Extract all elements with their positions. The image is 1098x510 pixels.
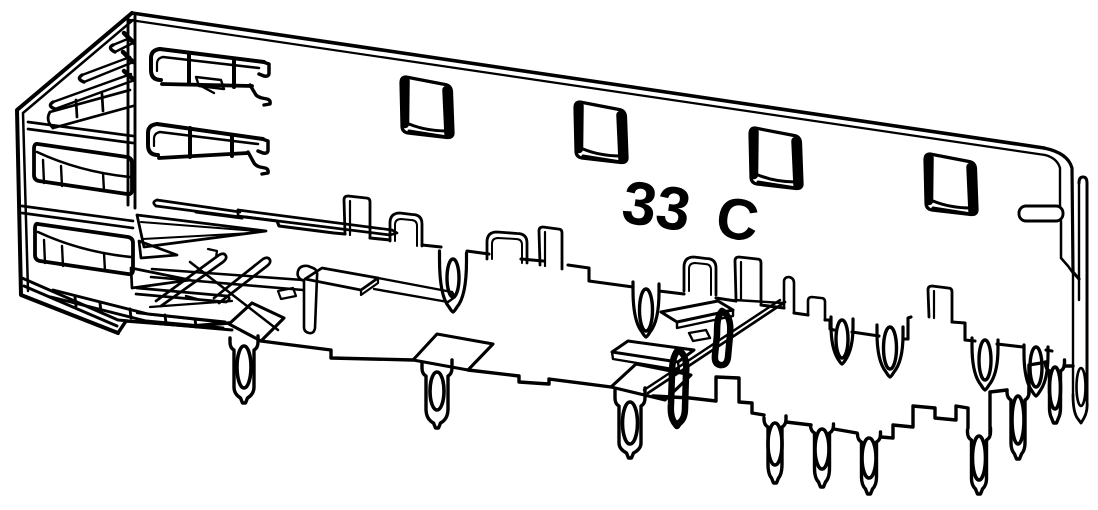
svg-text:C: C bbox=[712, 185, 763, 255]
svg-text:33: 33 bbox=[618, 168, 695, 245]
